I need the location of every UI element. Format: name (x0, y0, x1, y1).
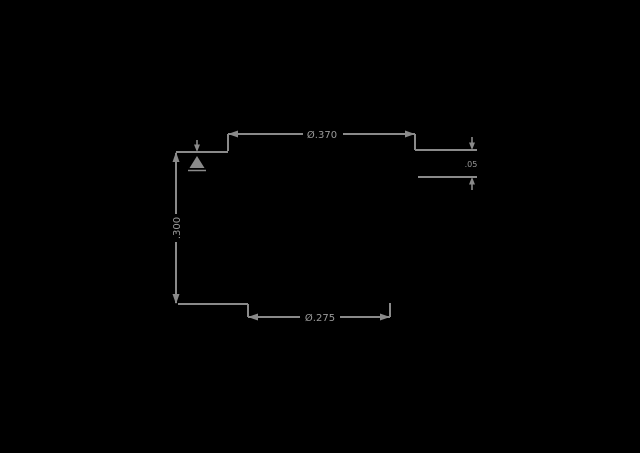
down-arrow-icon (194, 145, 200, 153)
bottom-width-dimension: Ø.275 (178, 303, 390, 324)
arrowhead-down-icon (173, 294, 180, 304)
right-thickness-dimension: .05 (415, 137, 477, 190)
arrowhead-left-icon (248, 314, 258, 321)
left-height-label: .300 (172, 217, 183, 239)
arrowhead-up-icon (173, 152, 180, 162)
small-down-arrow-icon (469, 143, 475, 151)
top-width-dimension: Ø.370 (228, 127, 415, 151)
arrowhead-right-icon (405, 131, 415, 138)
datum-triangle-icon (190, 156, 205, 168)
small-up-arrow-icon (469, 177, 475, 185)
dimension-drawing: Ø.370 .300 (0, 0, 640, 453)
drawing-canvas: Ø.370 .300 (0, 0, 640, 453)
left-height-dimension: .300 (170, 152, 183, 304)
arrowhead-left-icon (228, 131, 238, 138)
arrowhead-right-icon (380, 314, 390, 321)
top-left-edge-group (176, 140, 228, 171)
top-diameter-label: Ø.370 (307, 129, 337, 141)
bottom-diameter-label: Ø.275 (305, 312, 335, 324)
right-thickness-label: .05 (465, 160, 478, 169)
